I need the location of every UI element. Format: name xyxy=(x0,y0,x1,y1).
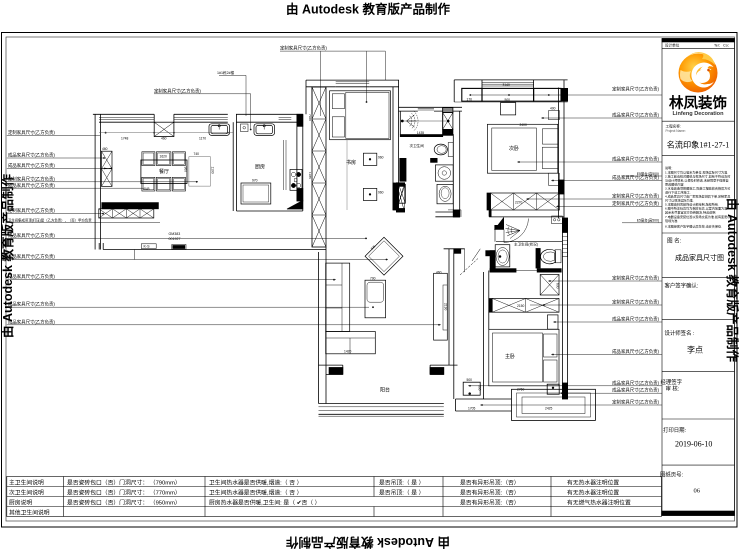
svg-text:Tel： Co：: Tel： Co： xyxy=(714,44,731,48)
svg-text:500: 500 xyxy=(467,378,473,382)
svg-text:有无热水器注明位置: 有无热水器注明位置 xyxy=(567,479,619,487)
svg-text:是否有异形吊顶:（否）: 是否有异形吊顶:（否） xyxy=(460,489,520,497)
svg-text:1935: 1935 xyxy=(308,172,312,179)
svg-text:是否瓷砖包口（否）门洞尺寸： （790mm）: 是否瓷砖包口（否）门洞尺寸： （790mm） xyxy=(67,479,181,487)
svg-text:960: 960 xyxy=(378,191,384,195)
svg-text:成品家具尺寸(乙方负责): 成品家具尺寸(乙方负责) xyxy=(8,301,55,308)
svg-text:1748: 1748 xyxy=(121,137,129,141)
svg-text:次卫生间: 次卫生间 xyxy=(410,143,425,148)
svg-text:1100: 1100 xyxy=(211,167,215,174)
svg-text:500: 500 xyxy=(505,98,511,102)
svg-text:2425: 2425 xyxy=(545,407,553,411)
svg-text:由 Autodesk 教育版产品制作: 由 Autodesk 教育版产品制作 xyxy=(286,535,450,550)
svg-text:由 Autodesk 教育版产品制作: 由 Autodesk 教育版产品制作 xyxy=(725,198,740,362)
svg-text:其他卫生间说明: 其他卫生间说明 xyxy=(9,509,50,517)
svg-text:成品家具尺寸(乙方负责): 成品家具尺寸(乙方负责) xyxy=(8,253,55,260)
svg-text:Linfeng Decoration: Linfeng Decoration xyxy=(673,111,725,117)
svg-text:定制家具尺寸(乙方负责): 定制家具尺寸(乙方负责) xyxy=(280,45,327,52)
svg-text:835: 835 xyxy=(370,244,377,251)
svg-text:现场为准.: 现场为准. xyxy=(665,218,678,223)
svg-text:1170: 1170 xyxy=(199,137,206,141)
svg-text:定制家具尺寸(乙方负责): 定制家具尺寸(乙方负责) xyxy=(612,275,659,282)
svg-text:400: 400 xyxy=(550,107,556,111)
svg-text:GM383: GM383 xyxy=(169,232,181,236)
svg-text:06: 06 xyxy=(694,488,701,495)
svg-text:设计单位: 设计单位 xyxy=(665,43,680,48)
svg-text:有无燃气热水器注明位置: 有无燃气热水器注明位置 xyxy=(567,499,631,507)
svg-text:定制家具尺寸(乙方负责): 定制家具尺寸(乙方负责) xyxy=(8,207,55,214)
svg-text:阳台: 阳台 xyxy=(380,387,390,394)
svg-text:460: 460 xyxy=(436,271,442,275)
svg-text:卫生间集成吊顶(打压)是（乙方负责），（否）甲方负责: 卫生间集成吊顶(打压)是（乙方负责），（否）甲方负责 xyxy=(8,217,92,222)
svg-text:300: 300 xyxy=(478,385,482,391)
svg-text:成品家具尺寸图: 成品家具尺寸图 xyxy=(675,253,724,262)
svg-text:1420: 1420 xyxy=(344,349,352,353)
svg-text:170: 170 xyxy=(467,97,473,101)
svg-text:是否有异形吊顶:（否）: 是否有异形吊顶:（否） xyxy=(460,499,520,507)
svg-text:600: 600 xyxy=(556,283,560,289)
svg-text:成品家具尺寸(乙方负责): 成品家具尺寸(乙方负责) xyxy=(612,387,659,394)
svg-text:K-S: K-S xyxy=(144,245,151,249)
svg-text:2019-06-10: 2019-06-10 xyxy=(675,440,712,449)
svg-text:厨房说明: 厨房说明 xyxy=(9,499,32,507)
svg-text:李点: 李点 xyxy=(687,345,703,355)
svg-text:460: 460 xyxy=(161,137,167,141)
svg-text:成品家具尺寸(乙方负责): 成品家具尺寸(乙方负责) xyxy=(612,379,659,386)
svg-text:次卧: 次卧 xyxy=(509,145,519,152)
svg-text:成品家具尺寸(乙方负责): 成品家具尺寸(乙方负责) xyxy=(8,162,55,169)
svg-text:书房: 书房 xyxy=(346,159,356,166)
svg-text:成品家具尺寸(乙方负责): 成品家具尺寸(乙方负责) xyxy=(8,182,55,189)
svg-text:是否瓷砖包口（否）门洞尺寸： （950mm）: 是否瓷砖包口（否）门洞尺寸： （950mm） xyxy=(67,499,181,507)
svg-text:001927: 001927 xyxy=(169,237,181,241)
svg-text:厨房: 厨房 xyxy=(255,164,265,171)
svg-text:是否瓷砖包口（否）门洞尺寸： （770mm）: 是否瓷砖包口（否）门洞尺寸： （770mm） xyxy=(67,489,181,497)
svg-text:成品家具尺寸(乙方负责): 成品家具尺寸(乙方负责) xyxy=(8,232,55,239)
svg-text:说明：: 说明： xyxy=(665,165,674,170)
svg-text:2190: 2190 xyxy=(444,303,448,311)
svg-text:460: 460 xyxy=(102,147,108,151)
svg-text:主卫生间(状况): 主卫生间(状况) xyxy=(514,242,538,247)
svg-text:成品家具尺寸(乙方负责): 成品家具尺寸(乙方负责) xyxy=(8,318,55,325)
svg-text:设计师签名 :: 设计师签名 : xyxy=(665,329,695,337)
svg-text:卫生间热水器是否供暖,烟道:（ 否 ）: 卫生间热水器是否供暖,烟道:（ 否 ） xyxy=(209,479,302,487)
svg-text:其余未尽事宜双方协商解决,特此说明.: 其余未尽事宜双方协商解决,特此说明. xyxy=(665,210,716,215)
svg-text:成品家具尺寸(乙方负责): 成品家具尺寸(乙方负责) xyxy=(8,273,55,280)
svg-text:是否吊顶:（ 是 ）: 是否吊顶:（ 是 ） xyxy=(379,480,424,487)
svg-text:名流印象1#1-27-1: 名流印象1#1-27-1 xyxy=(667,140,730,150)
svg-text:成品家具尺寸(乙方负责): 成品家具尺寸(乙方负责) xyxy=(612,348,659,355)
svg-text:是否有异形吊顶:（否）: 是否有异形吊顶:（否） xyxy=(460,479,520,487)
svg-text:定制家具尺寸(乙方负责): 定制家具尺寸(乙方负责) xyxy=(612,299,659,306)
svg-text:成品家具尺寸(乙方负责): 成品家具尺寸(乙方负责) xyxy=(612,174,659,181)
svg-text:成品家具尺寸(乙方负责): 成品家具尺寸(乙方负责) xyxy=(612,156,659,163)
svg-text:3140: 3140 xyxy=(503,83,511,87)
svg-text:卫生间热水器是否供暖,烟道:（ 否 ）: 卫生间热水器是否供暖,烟道:（ 否 ） xyxy=(209,489,302,497)
svg-text:图纸页号:: 图纸页号: xyxy=(660,471,683,479)
svg-text:Project Name:: Project Name: xyxy=(666,129,686,133)
svg-text:成品家具尺寸(乙方负责): 成品家具尺寸(乙方负责) xyxy=(8,152,55,159)
svg-text:2270: 2270 xyxy=(515,201,523,205)
svg-text:主卫生间说明: 主卫生间说明 xyxy=(9,479,44,487)
svg-text:主卧: 主卧 xyxy=(505,353,515,360)
svg-text:审 核:: 审 核: xyxy=(666,385,680,393)
svg-text:970: 970 xyxy=(252,179,258,183)
svg-text:是否吊顶:（ 是 ）: 是否吊顶:（ 是 ） xyxy=(379,490,424,497)
svg-text:厨房热水器是否供暖,卫生间: 是（ ✔否（ ）: 厨房热水器是否供暖,卫生间: 是（ ✔否（ ） xyxy=(209,499,320,507)
svg-text:700: 700 xyxy=(370,276,376,280)
svg-text:由 Autodesk 教育版产品制作: 由 Autodesk 教育版产品制作 xyxy=(286,2,450,17)
svg-text:林凤装饰: 林凤装饰 xyxy=(669,94,727,112)
svg-text:经理签字: 经理签字 xyxy=(661,378,683,386)
svg-text:7928: 7928 xyxy=(308,114,312,121)
svg-text:8.本图经客户签字确认后生效,请妥善保存.: 8.本图经客户签字确认后生效,请妥善保存. xyxy=(665,224,722,229)
svg-text:图 名:: 图 名: xyxy=(667,237,682,245)
svg-text:960: 960 xyxy=(184,167,188,173)
svg-text:定制家具尺寸(乙方负责): 定制家具尺寸(乙方负责) xyxy=(612,399,659,406)
svg-text:成品家具尺寸(乙方负责): 成品家具尺寸(乙方负责) xyxy=(612,316,659,323)
svg-text:1#1栋2#楼: 1#1栋2#楼 xyxy=(217,70,235,75)
svg-text:2400: 2400 xyxy=(520,123,528,127)
svg-text:845: 845 xyxy=(144,187,150,191)
svg-text:2760: 2760 xyxy=(517,388,525,392)
svg-text:成品家具尺寸(乙方负责): 成品家具尺寸(乙方负责) xyxy=(612,112,659,119)
svg-text:定制家具尺寸(乙方负责): 定制家具尺寸(乙方负责) xyxy=(8,129,55,136)
svg-text:定制家具尺寸(乙方负责): 定制家具尺寸(乙方负责) xyxy=(8,175,55,182)
svg-text:打印日期:: 打印日期: xyxy=(663,426,686,434)
svg-text:定制家具尺寸(乙方负责): 定制家具尺寸(乙方负责) xyxy=(612,86,659,93)
svg-text:餐厅: 餐厅 xyxy=(159,168,169,175)
svg-text:2150: 2150 xyxy=(517,304,525,308)
svg-text:1620: 1620 xyxy=(160,154,168,158)
svg-text:次卫生间说明: 次卫生间说明 xyxy=(9,489,44,497)
svg-text:工程名称:: 工程名称: xyxy=(666,124,681,129)
svg-text:定制家具尺寸(乙方负责): 定制家具尺寸(乙方负责) xyxy=(612,193,659,200)
svg-text:客户签字确认:: 客户签字确认: xyxy=(665,282,699,290)
svg-text:定制家具尺寸(乙方负责): 定制家具尺寸(乙方负责) xyxy=(154,87,201,94)
svg-text:1435: 1435 xyxy=(417,131,425,135)
svg-text:E5窗台(高500): E5窗台(高500) xyxy=(637,218,659,223)
svg-text:定制家具尺寸(乙方负责): 定制家具尺寸(乙方负责) xyxy=(612,200,659,207)
svg-text:1705: 1705 xyxy=(468,407,476,411)
svg-text:740: 740 xyxy=(194,152,200,156)
svg-text:960: 960 xyxy=(378,156,384,160)
svg-text:有无热水器注明位置: 有无热水器注明位置 xyxy=(567,489,619,497)
